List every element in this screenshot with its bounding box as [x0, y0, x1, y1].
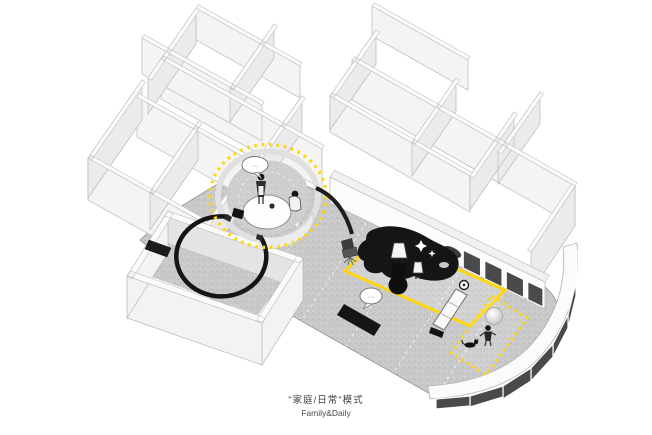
cat-head: [474, 340, 478, 344]
pouf: [392, 263, 407, 278]
caption-mode-zh: "家庭/日常"模式: [0, 394, 652, 407]
figure-body: [289, 196, 301, 211]
speech-dots: ···: [252, 163, 259, 170]
figure-head: [485, 325, 491, 331]
round-dining-table: [243, 195, 291, 229]
figure-head: [415, 256, 421, 262]
teapot: [269, 203, 274, 208]
play-ball: [486, 308, 503, 325]
figure-head: [396, 236, 403, 243]
caption-mode-en: Family&Daily: [0, 407, 652, 419]
floor-plan-illustration: ··· ···: [0, 0, 652, 435]
rug-cushion: [439, 262, 449, 268]
cat-body: [465, 342, 476, 347]
caption: "家庭/日常"模式 Family&Daily: [0, 394, 652, 419]
figure-body: [413, 262, 423, 273]
pouf: [389, 276, 408, 295]
figure-dress: [391, 243, 407, 258]
speech-dots: ···: [368, 294, 375, 301]
small-ball-dot: [463, 284, 466, 287]
figure-apron: [259, 186, 264, 195]
axonometric-floor-plan: ··· ···: [0, 0, 652, 435]
